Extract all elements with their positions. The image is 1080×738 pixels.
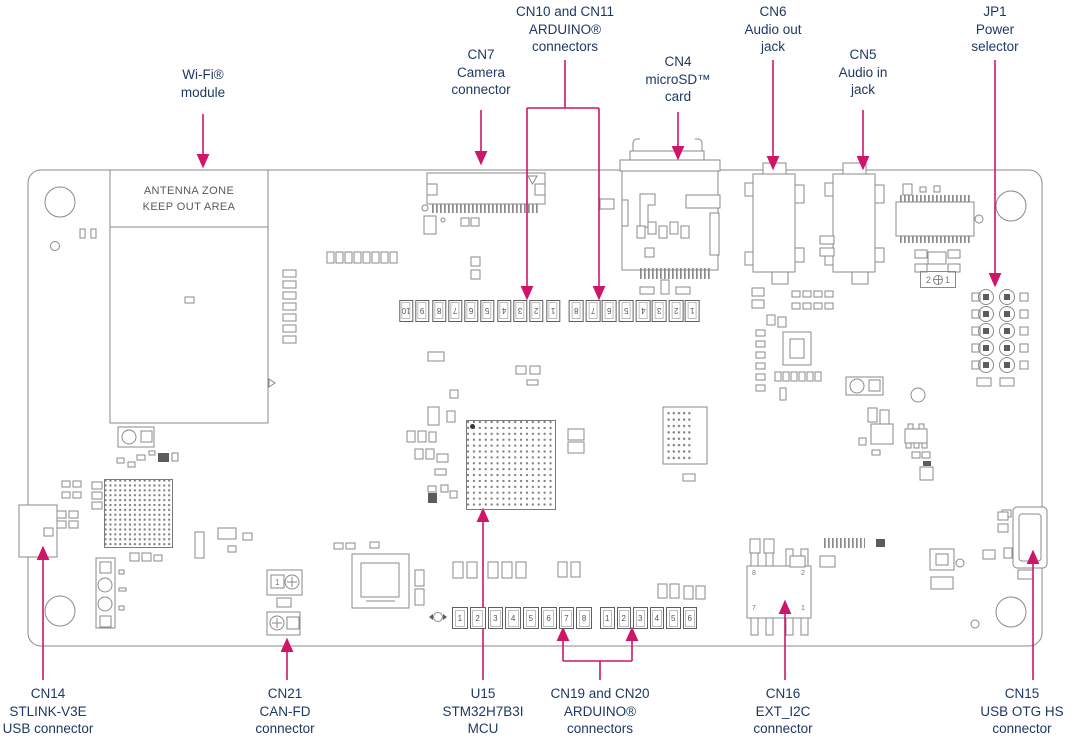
pin-8: 8 [432, 300, 446, 322]
callout-line: U15 [442, 685, 523, 703]
cn20-header: 123456 [600, 607, 697, 629]
sdram-dots [666, 410, 692, 461]
callout-line: CN5 [839, 46, 888, 64]
pin-1: 1 [600, 607, 615, 629]
pin-3: 3 [488, 607, 504, 629]
pin-5: 5 [523, 607, 539, 629]
callout-line: EXT_I2C [753, 703, 812, 721]
callout-line: CN15 [980, 685, 1063, 703]
callout-line: CN7 [451, 46, 510, 64]
cn16-pin2-label: 2 [801, 570, 805, 577]
callout-cn21: CN21 CAN-FD connector [255, 685, 314, 738]
callout-cn6: CN6 Audio out jack [744, 3, 801, 56]
callout-line: CN4 [645, 53, 710, 71]
pin-6: 6 [602, 300, 617, 322]
callout-line: ARDUINO® [516, 21, 614, 39]
cn11-header: 87654321 [569, 300, 700, 322]
button-strip [96, 558, 126, 628]
callout-line: USB connector [3, 720, 94, 738]
cn16-pin7-label: 7 [752, 605, 756, 612]
callout-line: CN19 and CN20 [550, 685, 649, 703]
stlink-chip [104, 479, 173, 548]
pin-8: 8 [576, 607, 592, 629]
cn21-pin1-label: 1 [275, 578, 279, 587]
callout-line: Camera [451, 64, 510, 82]
callout-line: CN16 [753, 685, 812, 703]
callout-cn19-cn20: CN19 and CN20 ARDUINO® connectors [550, 685, 649, 738]
callout-line: connector [451, 81, 510, 99]
pin-9: 9 [415, 300, 429, 322]
circle-plus-icon [933, 275, 943, 285]
pin-7: 7 [448, 300, 462, 322]
stlink-usb-connector [19, 505, 57, 557]
pin-2: 2 [529, 300, 543, 322]
callout-line: Power [971, 21, 1018, 39]
pin-2: 2 [617, 607, 632, 629]
antenna-line-1: ANTENNA ZONE [110, 183, 268, 199]
cn16-pin1-label: 1 [801, 605, 805, 612]
pin-7: 7 [586, 300, 601, 322]
callout-cn16: CN16 EXT_I2C connector [753, 685, 812, 738]
callout-line: Audio out [744, 21, 801, 39]
pin-3: 3 [513, 300, 527, 322]
jp1-silk-label: 2 1 [920, 271, 956, 288]
pin-4: 4 [636, 300, 651, 322]
jp1-jumper-block [972, 290, 1028, 387]
callout-line: Wi-Fi® [181, 66, 225, 84]
callout-line: jack [839, 81, 888, 99]
cn10-cn11-bracket [527, 60, 599, 108]
pin-6: 6 [464, 300, 478, 322]
callout-line: Audio in [839, 64, 888, 82]
pin-6: 6 [683, 607, 698, 629]
callout-line: MCU [442, 720, 523, 738]
audio-out-jack [745, 163, 804, 308]
pin1-marker [470, 424, 475, 429]
cn10-header: 10987654321 [399, 300, 560, 322]
callout-line: microSD™ [645, 71, 710, 89]
callout-line: CN6 [744, 3, 801, 21]
callout-line: connector [255, 720, 314, 738]
pin-1: 1 [546, 300, 560, 322]
pin-5: 5 [619, 300, 634, 322]
pin-5: 5 [666, 607, 681, 629]
callout-line: jack [744, 38, 801, 56]
pin-4: 4 [497, 300, 511, 322]
callout-line: ARDUINO® [550, 703, 649, 721]
callout-line: CN10 and CN11 [516, 3, 614, 21]
callout-cn15: CN15 USB OTG HS connector [980, 685, 1063, 738]
callout-line: JP1 [971, 3, 1018, 21]
callout-line: connectors [550, 720, 649, 738]
callout-line: STM32H7B3I [442, 703, 523, 721]
callout-line: connector [980, 720, 1063, 738]
cn16-pin8-label: 8 [752, 570, 756, 577]
callout-line: CN14 [3, 685, 94, 703]
callout-line: connector [753, 720, 812, 738]
callout-line: selector [971, 38, 1018, 56]
pin-5: 5 [480, 300, 494, 322]
callout-line: CN21 [255, 685, 314, 703]
jp1-silk-left: 2 [926, 275, 931, 285]
callout-u15: U15 STM32H7B3I MCU [442, 685, 523, 738]
pin-1: 1 [452, 607, 468, 629]
callout-line: USB OTG HS [980, 703, 1063, 721]
callout-cn4: CN4 microSD™ card [645, 53, 710, 106]
callout-line: CAN-FD [255, 703, 314, 721]
cn19-cn20-bracket [563, 661, 632, 680]
pin-8: 8 [569, 300, 584, 322]
pin-1: 1 [685, 300, 700, 322]
callout-line: card [645, 88, 710, 106]
pin-10: 10 [399, 300, 413, 322]
pin-4: 4 [505, 607, 521, 629]
audio-in-jack [820, 163, 884, 284]
top-right-component [896, 184, 974, 272]
jp1-silk-right: 1 [945, 275, 950, 285]
board-outline [28, 170, 1042, 646]
callout-line: connectors [516, 38, 614, 56]
mcu-chip [466, 420, 556, 510]
can-fd-connector [267, 570, 302, 635]
antenna-zone-text: ANTENNA ZONE KEEP OUT AREA [110, 183, 268, 215]
cn19-header: 12345678 [452, 607, 592, 629]
callout-jp1: JP1 Power selector [971, 3, 1018, 56]
callout-line: module [181, 84, 225, 102]
usb-otg-connector [1002, 507, 1047, 579]
wifi-module-chip [334, 542, 424, 608]
callout-cn7: CN7 Camera connector [451, 46, 510, 99]
callout-line: STLINK-V3E [3, 703, 94, 721]
pin-6: 6 [541, 607, 557, 629]
callout-cn5: CN5 Audio in jack [839, 46, 888, 99]
callout-wifi: Wi-Fi® module [181, 66, 225, 101]
antenna-line-2: KEEP OUT AREA [110, 199, 268, 215]
board-diagram: 10987654321 87654321 12345678 123456 ANT… [0, 0, 1080, 738]
pin-2: 2 [470, 607, 486, 629]
pin-2: 2 [669, 300, 684, 322]
pin-3: 3 [652, 300, 667, 322]
pin-4: 4 [650, 607, 665, 629]
pin-7: 7 [559, 607, 575, 629]
callout-cn14: CN14 STLINK-V3E USB connector [3, 685, 94, 738]
pin-3: 3 [633, 607, 648, 629]
callout-cn10-cn11: CN10 and CN11 ARDUINO® connectors [516, 3, 614, 56]
cn19-mark [429, 613, 447, 622]
microsd-slot [600, 139, 720, 294]
